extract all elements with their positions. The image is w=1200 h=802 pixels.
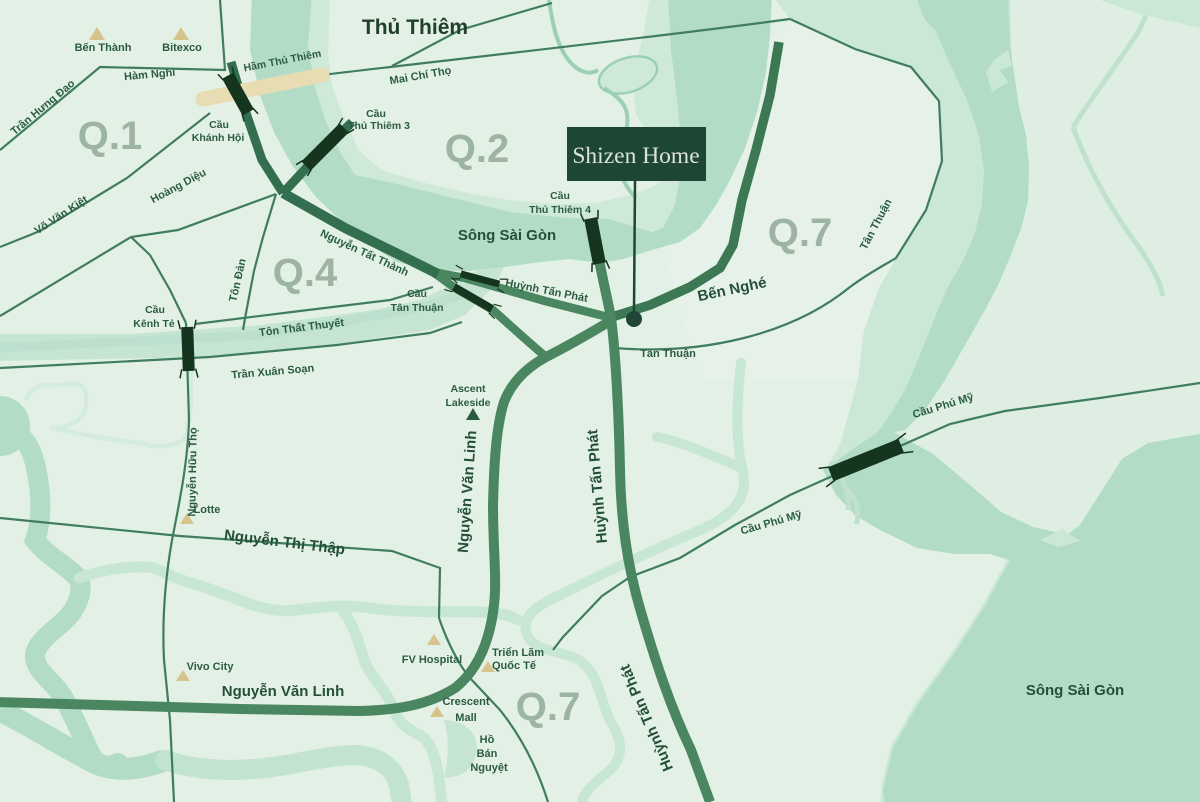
svg-text:Cầu: Cầu [407,288,427,300]
svg-text:Thủ Thiêm: Thủ Thiêm [362,16,468,39]
svg-text:Cầu: Cầu [145,304,165,316]
svg-text:Khánh Hội: Khánh Hội [192,132,245,144]
svg-text:Crescent: Crescent [442,696,489,708]
svg-text:Vivo City: Vivo City [187,661,235,673]
svg-text:Bán: Bán [477,748,498,760]
svg-text:Ascent: Ascent [450,383,486,395]
svg-text:Nguyễn Văn Linh: Nguyễn Văn Linh [222,683,345,700]
svg-text:Thủ Thiêm 4: Thủ Thiêm 4 [529,204,591,216]
svg-text:Nguyệt: Nguyệt [470,762,508,774]
svg-text:Bitexco: Bitexco [162,42,202,54]
svg-text:Mall: Mall [455,712,476,724]
svg-text:Q.4: Q.4 [273,251,338,295]
svg-text:Hồ: Hồ [480,734,495,746]
svg-text:Cầu: Cầu [550,190,570,202]
svg-text:Q.2: Q.2 [445,127,509,171]
svg-text:FV Hospital: FV Hospital [402,654,463,666]
svg-text:Q.7: Q.7 [768,211,832,255]
svg-text:Tân Thuận: Tân Thuận [390,302,443,314]
svg-text:Quốc Tế: Quốc Tế [492,660,537,672]
svg-text:Cầu: Cầu [366,108,386,120]
svg-text:Lotte: Lotte [194,504,221,516]
svg-text:Q.7: Q.7 [516,685,580,729]
svg-text:Triển Lãm: Triển Lãm [492,647,544,659]
svg-text:Bến Thành: Bến Thành [75,42,132,54]
svg-text:Tân Thuận: Tân Thuận [640,348,696,360]
svg-text:Sông Sài Gòn: Sông Sài Gòn [458,227,556,244]
svg-text:Shizen Home: Shizen Home [572,143,699,169]
svg-text:Sông Sài Gòn: Sông Sài Gòn [1026,682,1124,699]
svg-text:Q.1: Q.1 [78,114,142,158]
svg-text:Cầu: Cầu [209,119,229,131]
svg-text:Kênh Tẻ: Kênh Tẻ [133,318,175,330]
svg-text:Lakeside: Lakeside [446,397,491,409]
svg-text:Thủ Thiêm 3: Thủ Thiêm 3 [348,120,410,132]
